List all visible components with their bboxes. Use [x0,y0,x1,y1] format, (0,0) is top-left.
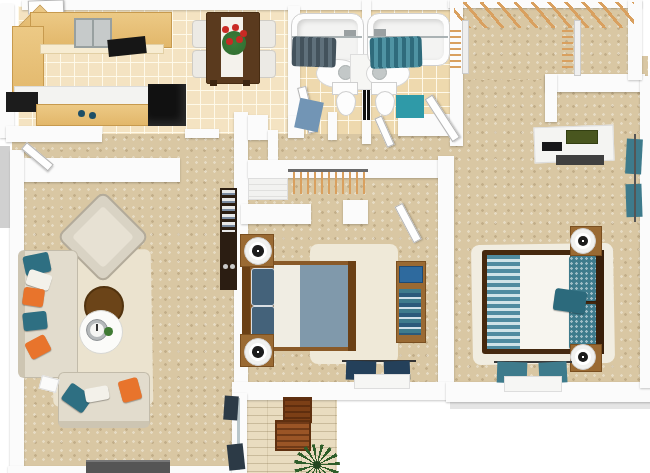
bath-mat [396,95,424,118]
window-curtain-rod [494,361,572,363]
island-wood-face [36,104,152,126]
toilet-tank [371,82,397,95]
closet-rod [288,169,368,172]
wall [248,115,268,140]
exterior-shadow [450,402,650,409]
bathroom-one-tile-floor [292,8,362,134]
clock-hand [96,324,98,331]
coffee-table [84,286,124,326]
vanity-cabinet [350,54,376,90]
red-flower [240,30,247,37]
table-leg [210,80,217,86]
wall-patio-slider [232,393,247,473]
nightstand [240,334,274,367]
wall [450,0,463,146]
room-patio [0,0,650,473]
clock [86,319,108,341]
bathroom-two-door [374,115,394,147]
counter-top-run [30,12,172,48]
headboard [596,250,604,354]
bedroom-one-door [395,203,422,243]
armchair [56,190,149,283]
island-knob [89,112,96,119]
toilet-bowl [336,91,356,116]
small-plant [104,327,113,336]
room-bathroom-one [0,0,650,473]
bedroom-two-door [425,95,460,143]
bed-foot-runner [487,255,520,349]
wooden-crate-large [275,420,311,451]
room-living [0,0,650,473]
east-curtain-rod [634,134,636,222]
tv-console [86,460,170,473]
bed-pillow [569,256,597,301]
armchair-cushion [72,206,134,268]
tray-table [79,310,123,354]
room-dining [0,0,650,473]
bookshelf [220,188,237,290]
counter-inner-lip [40,44,164,54]
wall [288,6,300,134]
dining-chair [192,50,212,78]
headboard [242,261,250,351]
sectional-sofa [18,250,78,378]
wall [241,204,311,224]
patio-plank-floor [233,391,337,473]
accent-pillow-orange [22,287,45,308]
sink-bowl [372,65,387,80]
vanity-sink [366,59,410,88]
window-curtain [538,361,567,383]
table-leg [243,80,250,86]
palm-plant [294,444,340,473]
room-bedroom-one [0,0,650,473]
counter-left-run [12,26,44,102]
cooktop [107,36,147,57]
wall [268,130,278,172]
room-walk-in-closet [0,0,650,473]
bookshelf-knob [230,264,235,269]
wall [234,112,248,396]
curtain-rod [292,36,362,38]
wall [10,150,24,470]
floor-layer [0,0,650,473]
keyboard [542,142,562,151]
tub-faucet [374,29,386,37]
toilet-tank [332,82,358,95]
entry-door [21,142,54,171]
footboard [348,261,356,351]
table-runner [221,17,243,77]
desk [533,125,614,164]
room-bathroom-two [0,0,650,473]
window-sill [504,376,562,392]
tub-faucet [344,30,356,38]
bathroom-two-tile-floor [366,8,452,134]
kitchen-dining-tile-floor [18,6,298,134]
wall [12,158,180,182]
bedroom-two-carpet [446,56,648,392]
top-wall-door [28,0,64,15]
area-rug [310,244,398,364]
window-curtain [384,361,411,381]
book-stack [399,289,421,335]
door-layer [0,0,650,473]
accent-pillow-white [25,269,53,292]
dining-table [206,12,260,84]
wall [640,76,650,388]
red-flower [232,24,239,31]
hangers-left [450,26,461,70]
accent-pillow-teal [22,311,48,331]
wall [232,382,448,400]
wall [343,200,368,224]
patio-door-curtain [223,396,239,421]
flower-leaves [222,31,246,55]
clock-face [90,323,104,337]
loveseat [58,372,150,428]
drum-lamp [244,237,272,265]
refrigerator [148,84,186,126]
desk [396,261,426,343]
hanger-rod-right [574,20,581,76]
island-knob [78,110,85,117]
red-flower [226,38,233,45]
room-kitchen [0,0,650,473]
bathtub [291,13,364,66]
wall [446,382,650,402]
accent-pillow-teal [61,382,94,413]
nightstand [570,226,602,256]
bathroom-one-door [297,86,317,134]
east-curtain [625,184,642,218]
bed-duvet [520,255,570,349]
east-curtain [625,139,643,175]
wall [248,160,440,178]
bed-sheet-fold [274,265,300,347]
area-rug [471,243,615,365]
divider-mirror-strip [363,75,366,120]
hall-carpet [12,126,462,168]
window-curtain-rod [342,360,416,362]
wooden-crate-small [283,397,312,423]
area-rug [51,249,154,407]
accent-pillow-orange [24,334,52,360]
bed-pillow [251,268,275,306]
bookshelf-books [222,190,235,232]
room-bedroom-two [0,0,650,473]
wall [438,156,454,392]
hanger-rod-left [462,20,469,74]
laptop [399,266,423,283]
dining-chair [256,20,276,48]
red-flower [222,26,229,33]
window-curtain [346,360,377,380]
wall [628,0,642,80]
sink-basin [92,18,112,48]
wall [8,466,236,473]
hangers-right [562,26,573,72]
hanger-rail-top [454,2,634,28]
wall-bath-divider [362,0,371,144]
curtain-rod [368,36,448,38]
sink-bowl [338,65,353,80]
toilet-bowl [375,91,395,116]
throw-pillow [553,288,588,314]
floor-plan-canvas [0,0,650,473]
accent-pillow-orange [117,377,142,403]
dining-chair [256,50,276,78]
wall [545,74,645,92]
laptop [566,130,598,144]
closet-carpet [452,4,638,80]
bookshelf-knob [223,264,228,269]
wall [448,0,642,8]
sliding-door-glass [237,398,240,470]
drum-lamp [244,338,272,366]
wall [545,74,557,122]
window-curtain [497,361,528,383]
wall [398,114,462,136]
exterior-shadow [0,146,10,228]
nightstand [570,344,602,372]
divider-mirror-strip [367,75,370,120]
accent-pillow-teal [22,252,52,277]
dining-chair [192,20,212,48]
closet-dresser [248,178,288,200]
window-sill [354,374,410,389]
vanity-sink [316,59,360,88]
bed-frame [482,250,602,354]
island-counter-top [14,86,154,108]
drum-lamp [570,344,596,370]
nightstand [240,234,274,267]
flower-centerpiece [220,24,248,58]
wall [288,116,304,138]
wall [22,0,452,10]
palm-plant-center [313,461,321,469]
red-flower [236,36,243,43]
bathtub [367,13,450,66]
wall [6,126,102,142]
shower-curtain [369,36,422,69]
bedroom-one-carpet [234,162,446,392]
drum-lamp [570,228,596,254]
bed-frame [242,261,356,351]
patio-door-curtain [227,443,246,471]
accent-pillow-white [84,385,110,403]
dropped-card [38,375,59,393]
bath-mat [294,98,324,132]
bed-pillow [569,304,597,349]
bed-pillow [251,306,275,344]
threshold [185,129,219,138]
desk-chair-edge [556,155,604,165]
range-front [6,92,38,112]
wall [0,4,14,138]
wall [328,112,337,140]
sink-basin [74,18,94,48]
closet-hangers [288,172,368,194]
bed-duvet [300,265,348,347]
shower-curtain [291,36,336,68]
living-room-carpet [12,158,234,470]
counter-corner [15,5,66,56]
wall-layer [0,0,650,473]
